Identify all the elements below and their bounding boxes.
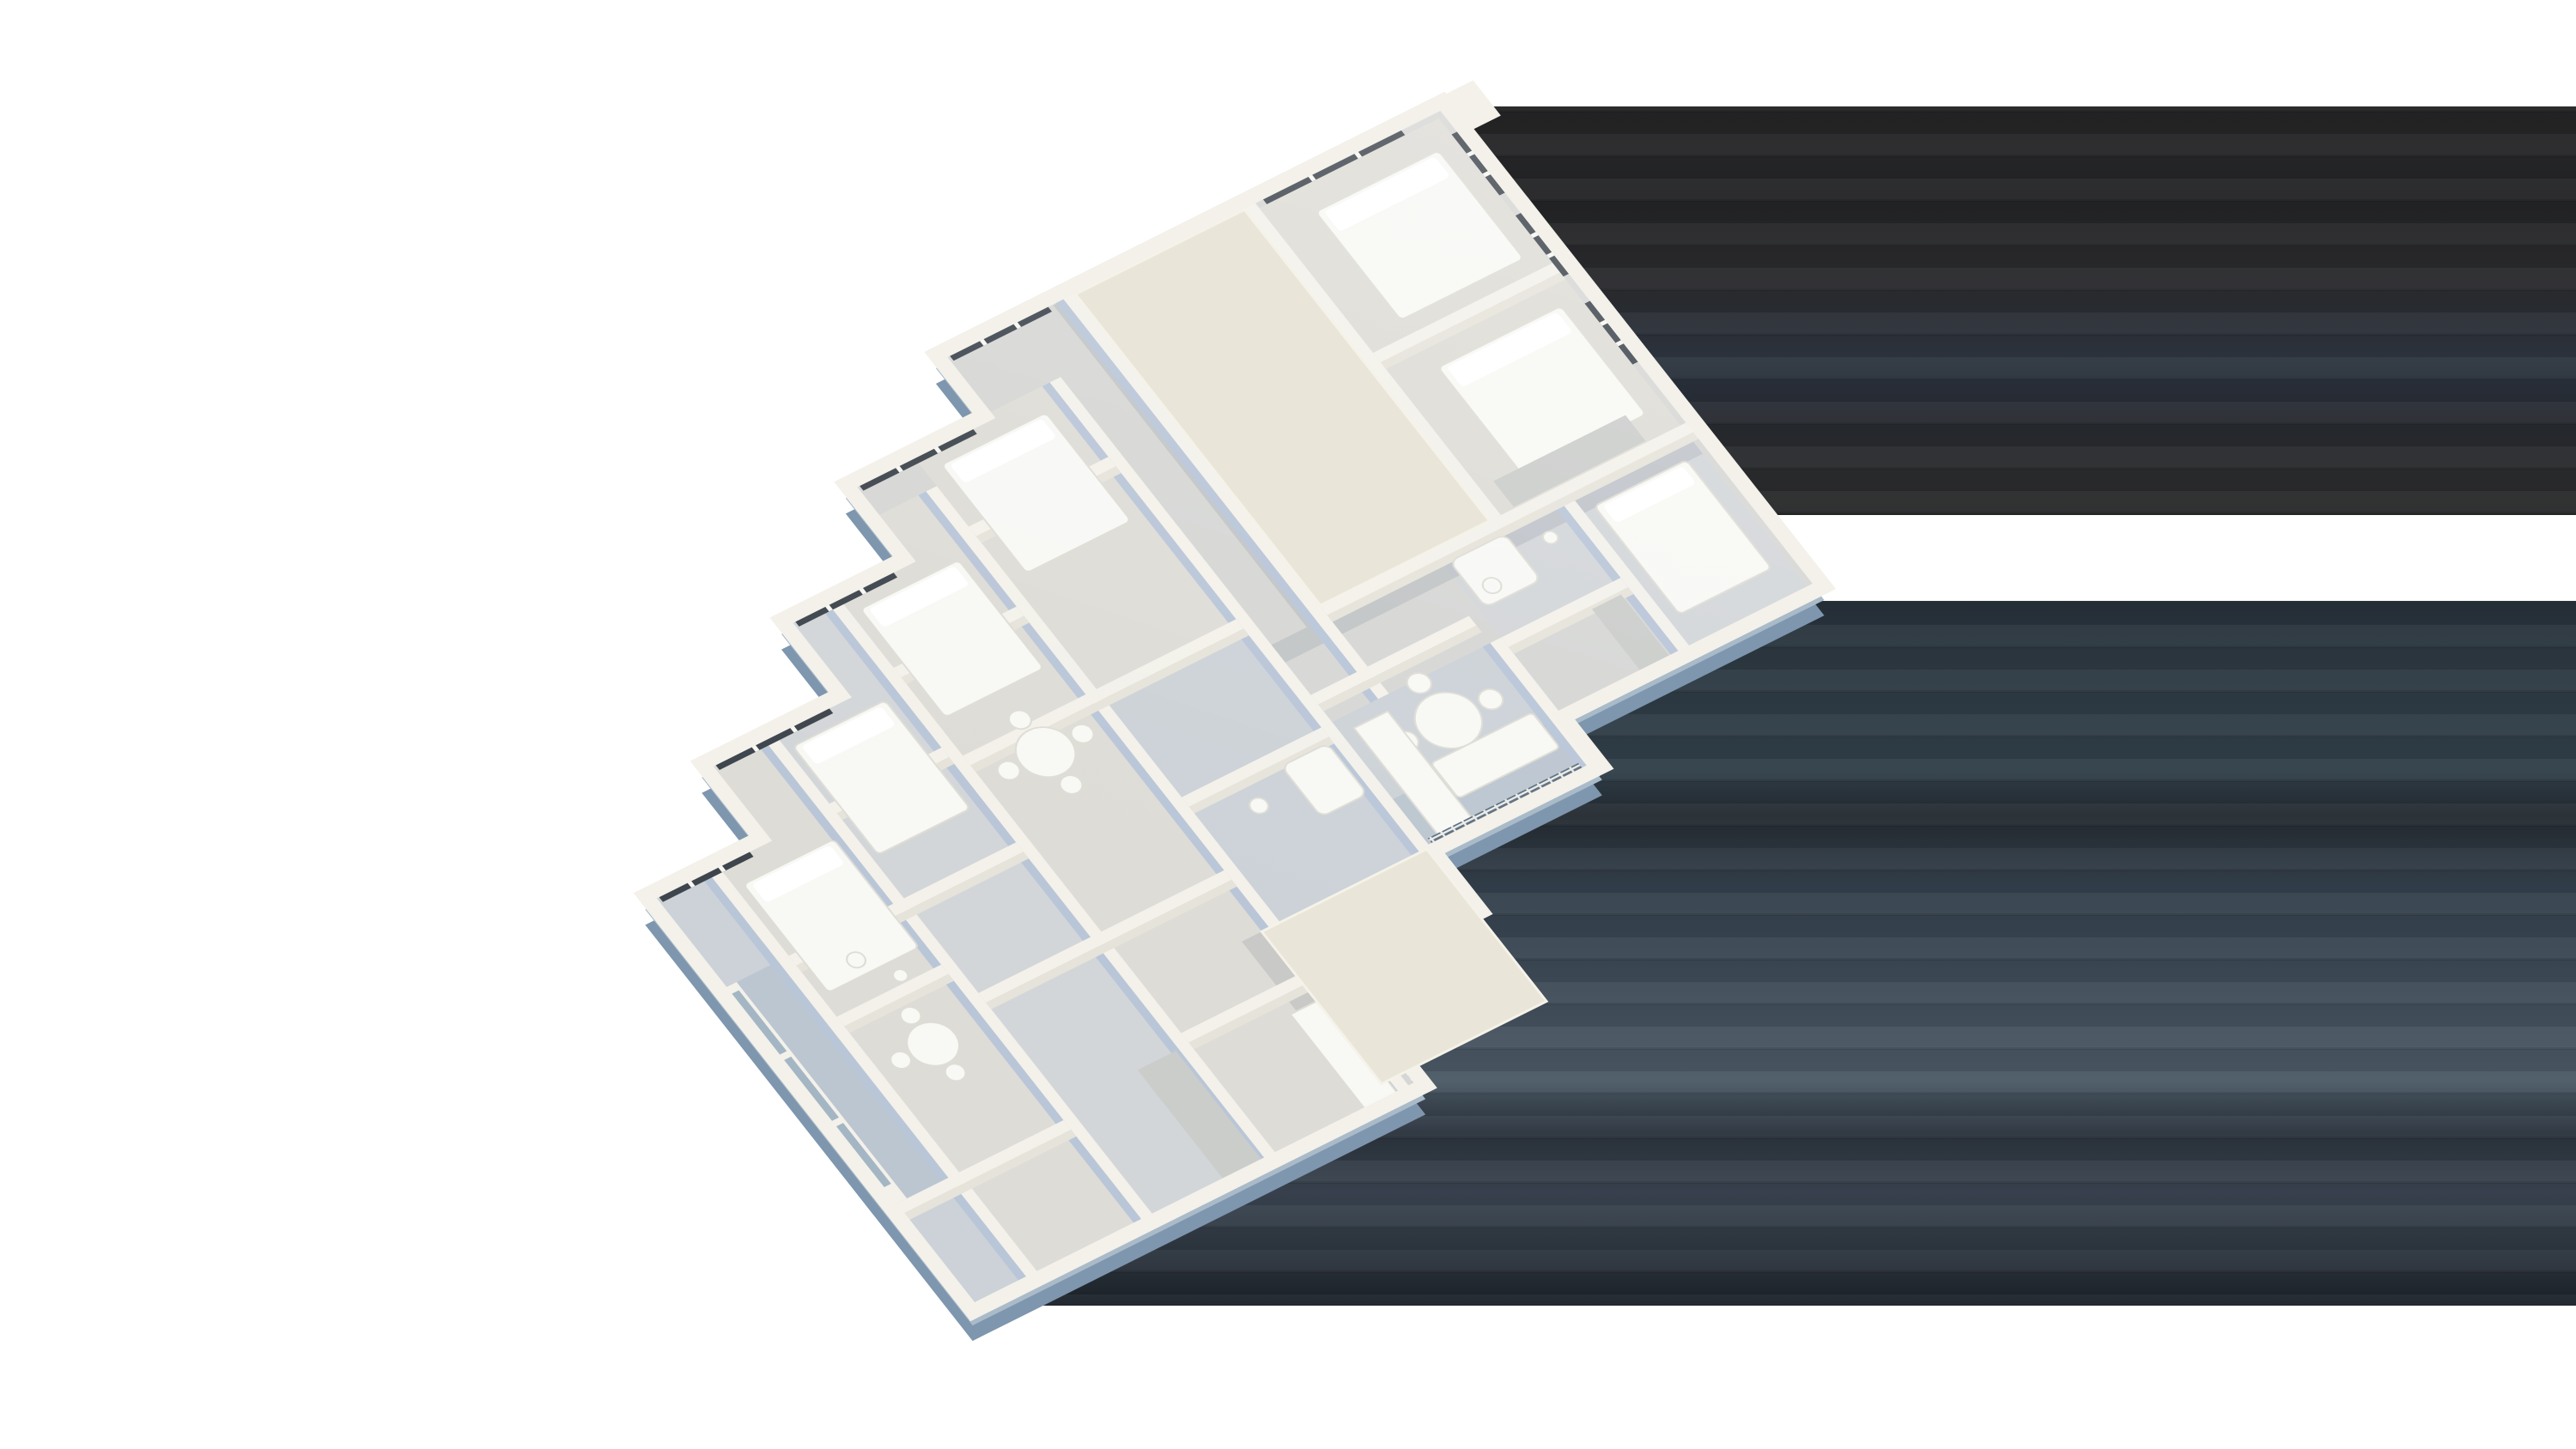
screenshot-root: Isometric 3D rendering of a residential … [0,0,2576,1449]
floorplan-render-canvas [0,0,2576,1449]
